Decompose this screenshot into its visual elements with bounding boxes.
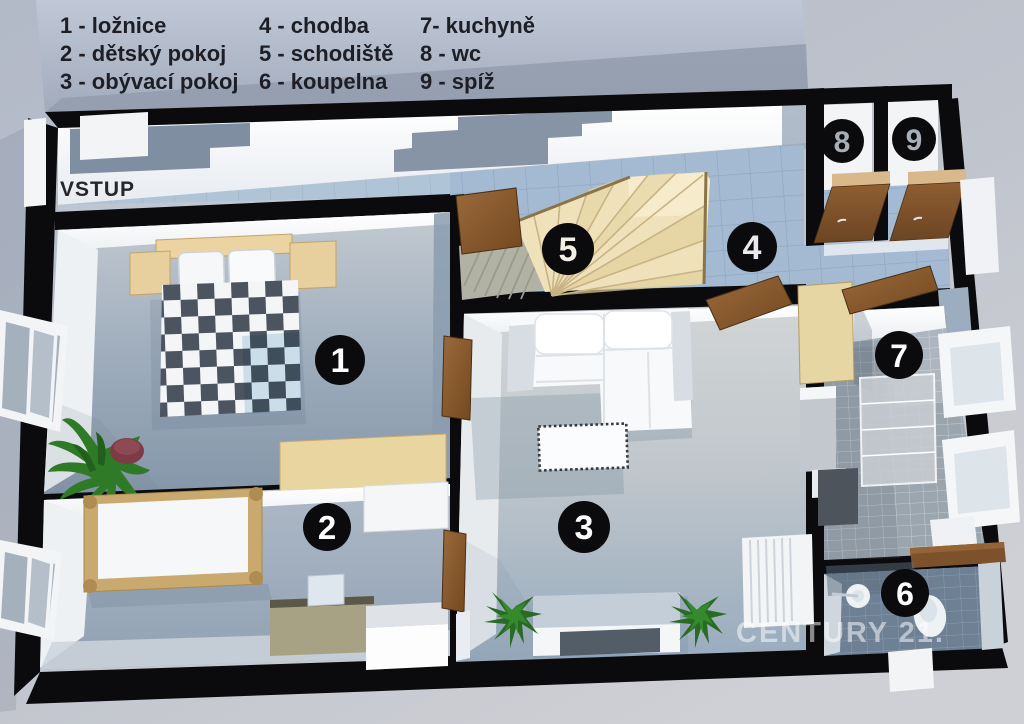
svg-text:2: 2: [318, 509, 336, 546]
svg-text:9: 9: [906, 124, 923, 157]
svg-text:CENTURY 21.: CENTURY 21.: [736, 617, 945, 649]
svg-text:8: 8: [834, 126, 851, 159]
svg-text:5 - schodiště: 5 - schodiště: [259, 41, 393, 66]
svg-text:9 - spíž: 9 - spíž: [420, 69, 495, 94]
svg-text:4: 4: [743, 229, 762, 267]
svg-text:6 - koupelna: 6 - koupelna: [259, 69, 388, 94]
svg-text:8 - wc: 8 - wc: [420, 41, 481, 66]
svg-text:3 - obývací pokoj: 3 - obývací pokoj: [60, 69, 239, 94]
svg-text:3: 3: [575, 509, 594, 547]
svg-text:2 - dětský pokoj: 2 - dětský pokoj: [60, 41, 226, 66]
svg-text:1: 1: [331, 342, 350, 380]
svg-text:4 - chodba: 4 - chodba: [259, 13, 370, 38]
svg-text:1 - ložnice: 1 - ložnice: [60, 13, 166, 38]
svg-text:VSTUP: VSTUP: [60, 178, 135, 201]
svg-text:7: 7: [890, 338, 908, 374]
svg-text:7- kuchyně: 7- kuchyně: [420, 13, 535, 38]
svg-text:5: 5: [559, 231, 578, 269]
svg-text:6: 6: [896, 576, 914, 612]
